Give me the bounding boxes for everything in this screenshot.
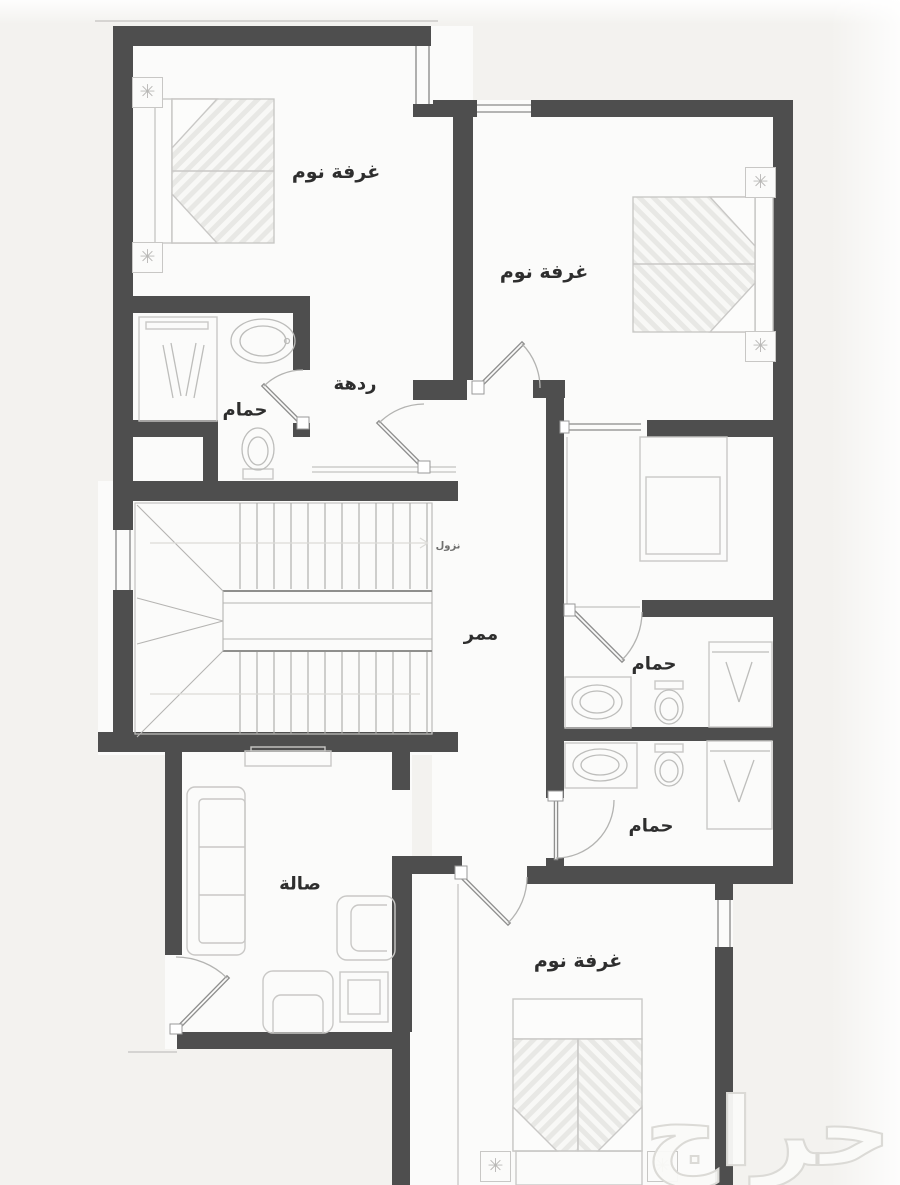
label-bathroom-left: حمام [223, 400, 268, 421]
floor-plan-page: ✳ ✳ ✳ ✳ ✳ ✳ غرفة نوم غرفة نوم غرفة نوم ر… [0, 0, 900, 1185]
ac-unit-icon: ✳ [745, 167, 776, 198]
ac-unit-icon: ✳ [132, 77, 163, 108]
window-bedroom-top-left [412, 46, 433, 104]
label-bathroom-lower: حمام [629, 816, 674, 837]
label-living-room: صالة [279, 874, 321, 895]
label-corridor: ممر [464, 624, 498, 645]
ac-unit-icon: ✳ [480, 1151, 511, 1182]
fan-icon: ✳ [753, 173, 769, 192]
fan-icon: ✳ [140, 83, 156, 102]
ac-unit-icon: ✳ [745, 331, 776, 362]
label-hall: ردهة [334, 374, 377, 395]
ac-unit-icon: ✳ [132, 242, 163, 273]
fan-icon: ✳ [488, 1157, 504, 1176]
label-bedroom-top-left: غرفة نوم [292, 161, 380, 183]
window-bedroom-bottom [715, 900, 733, 947]
label-bedroom-top-right: غرفة نوم [500, 261, 588, 283]
fan-icon: ✳ [753, 337, 769, 356]
bed-top-left [155, 99, 274, 243]
label-bedroom-bottom: غرفة نوم [534, 950, 622, 972]
label-stairs-direction: نزول [436, 541, 461, 552]
watermark-logo: حراج [606, 1078, 900, 1185]
bed-top-right [633, 197, 773, 332]
fan-icon: ✳ [140, 248, 156, 267]
window-bedroom-top-right [477, 101, 531, 116]
window-stairs [113, 530, 133, 590]
label-bathroom-middle: حمام [632, 654, 677, 675]
